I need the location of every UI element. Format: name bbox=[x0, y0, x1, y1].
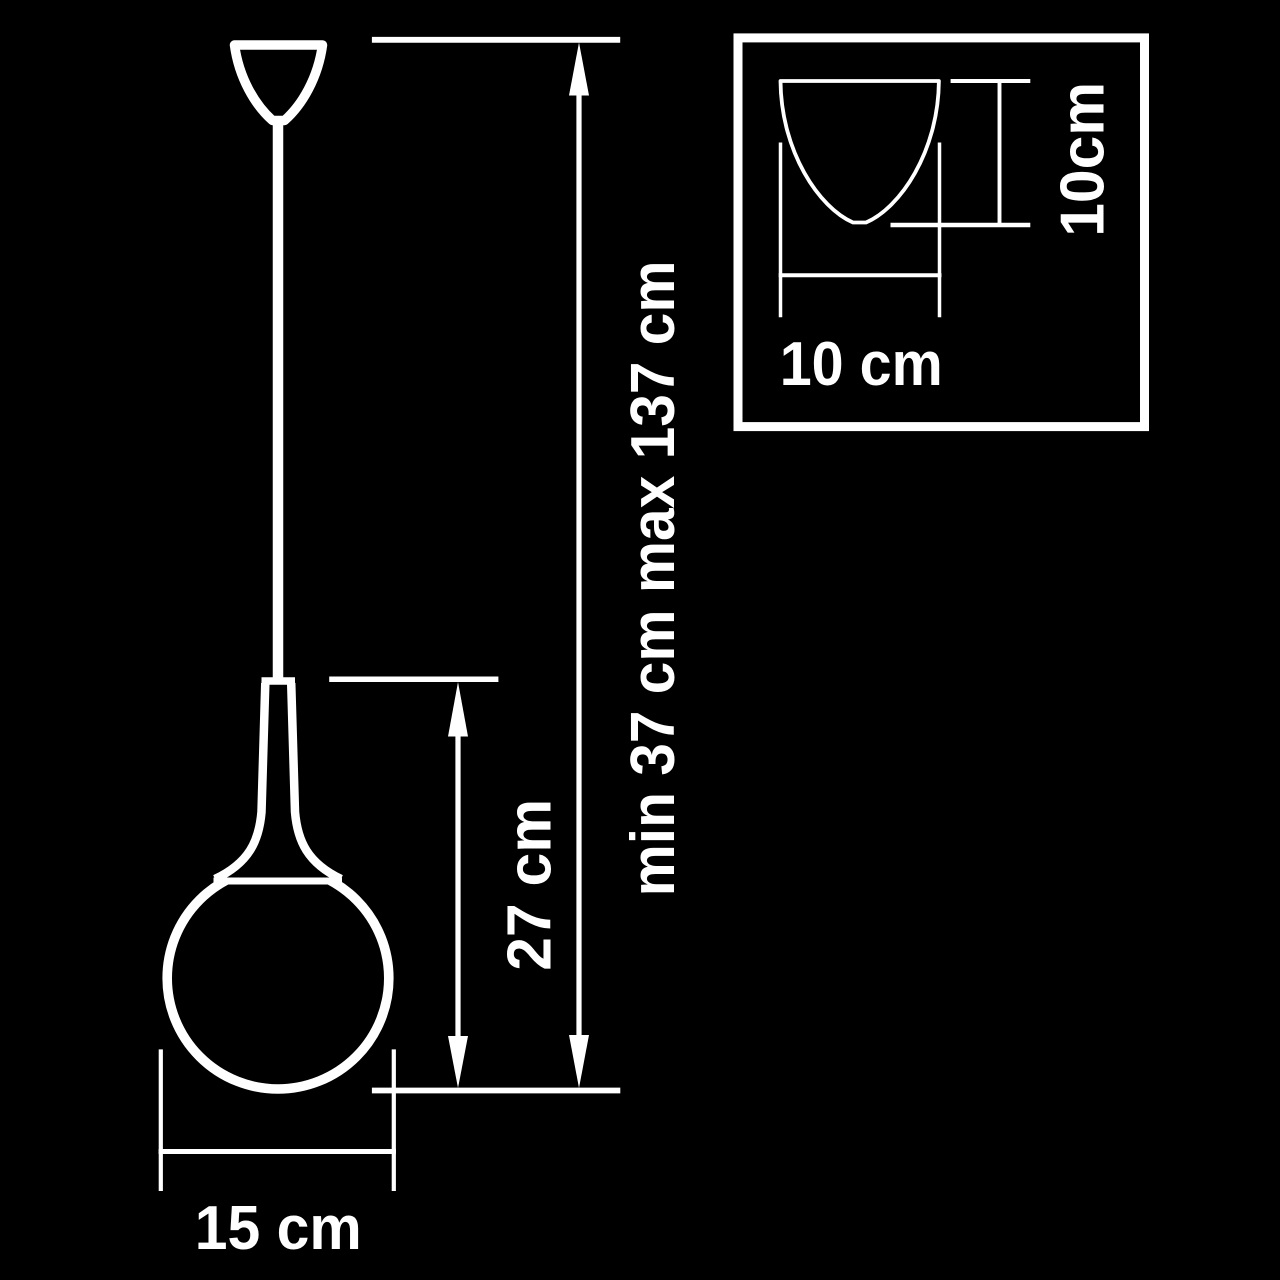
svg-text:10 cm: 10 cm bbox=[780, 330, 943, 399]
svg-text:min 37 cm max 137 cm: min 37 cm max 137 cm bbox=[619, 260, 688, 896]
svg-text:15 cm: 15 cm bbox=[195, 1194, 362, 1263]
svg-text:27 cm: 27 cm bbox=[496, 799, 565, 971]
svg-text:10cm: 10cm bbox=[1049, 82, 1118, 237]
